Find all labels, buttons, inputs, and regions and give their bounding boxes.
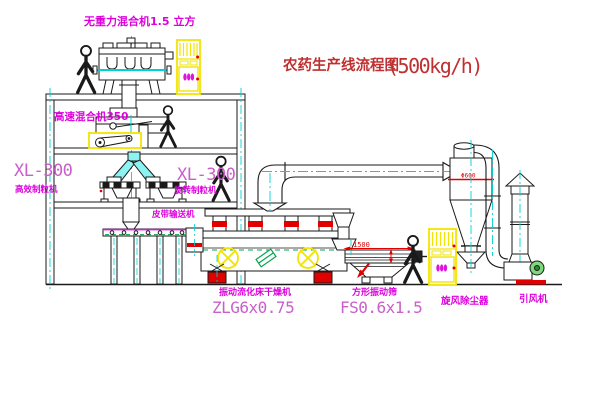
induced-draft-fan bbox=[504, 261, 546, 285]
dim-cyclone-diameter: Φ600 bbox=[461, 173, 476, 180]
label-granulator-left-model: XL-300 bbox=[14, 161, 73, 181]
control-cabinet-upper bbox=[177, 40, 200, 94]
label-granulator-left-name: 高效制粒机 bbox=[15, 184, 58, 195]
label-high-speed-mixer: 高速混合机350 bbox=[54, 110, 128, 123]
control-cabinet-lower bbox=[429, 229, 456, 285]
y-chute bbox=[107, 152, 160, 182]
label-granulator-right-model: XL-300 bbox=[177, 165, 236, 185]
label-belt-conveyor: 皮带输送机 bbox=[151, 209, 195, 220]
process-flow-diagram: 无重力混合机1.5 立方 高速混合机350 XL-300 高效制粒机 XL-30… bbox=[0, 0, 600, 403]
label-screen-model: FS0.6x1.5 bbox=[340, 298, 422, 317]
belt-conveyor bbox=[103, 229, 187, 284]
exhaust-pipe bbox=[254, 162, 451, 212]
title-capacity: (500kg/h) bbox=[387, 54, 482, 78]
label-dryer-name: 振动流化床干燥机 bbox=[219, 286, 291, 298]
person-icon bbox=[405, 236, 422, 282]
person-icon bbox=[78, 46, 95, 92]
label-granulator-right-name: 旋转制粒机 bbox=[173, 185, 217, 196]
label-cyclone: 旋风除尘器 bbox=[440, 295, 489, 307]
label-fan: 引风机 bbox=[519, 293, 548, 305]
label-screen-name: 方形振动筛 bbox=[352, 286, 397, 298]
dim-screen-length: 1500 bbox=[353, 241, 370, 249]
title-text: 农药生产线流程图 bbox=[282, 56, 399, 74]
fluid-bed-dryer bbox=[186, 209, 356, 284]
discharge-duct bbox=[123, 198, 139, 229]
person-icon bbox=[161, 106, 176, 146]
diagram-title: 农药生产线流程图 (500kg/h) bbox=[282, 54, 482, 78]
diagram-canvas: 无重力混合机1.5 立方 高速混合机350 XL-300 高效制粒机 XL-30… bbox=[0, 0, 600, 403]
label-gravityless-mixer: 无重力混合机1.5 立方 bbox=[83, 14, 195, 28]
label-dryer-model: ZLG6x0.75 bbox=[212, 298, 294, 317]
